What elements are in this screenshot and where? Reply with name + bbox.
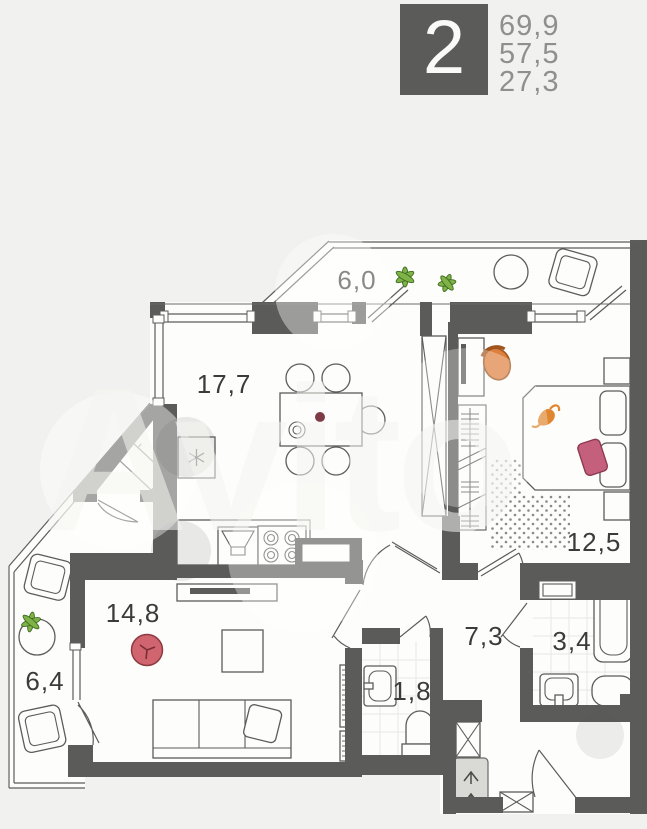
floor-plan-svg: 6,0 17,7 12,5 14,8 6,4 7,3 3,4 1,8 Avito: [0, 0, 647, 829]
nightstand: [604, 492, 630, 520]
floor-plan-page: 2 69,9 57,5 27,3: [0, 0, 647, 829]
sink-tap: [555, 695, 563, 706]
label-wc: 1,8: [392, 676, 431, 706]
nightstand: [604, 358, 630, 384]
round-table: [494, 255, 528, 289]
label-bath: 3,4: [552, 626, 591, 656]
square-table: [222, 630, 263, 672]
label-living: 14,8: [106, 598, 161, 628]
wc-tap: [364, 683, 373, 689]
watermark-text: Avito: [40, 345, 515, 574]
label-bedroom: 12,5: [567, 527, 622, 557]
label-hall: 7,3: [464, 621, 503, 651]
armchair: [17, 704, 67, 754]
wc-toilet-bowl: [406, 711, 434, 744]
sofa-pillow: [243, 704, 283, 744]
label-balcony-side: 6,4: [25, 666, 64, 696]
rug-dots: [522, 494, 570, 550]
bed-pillow: [600, 391, 626, 435]
